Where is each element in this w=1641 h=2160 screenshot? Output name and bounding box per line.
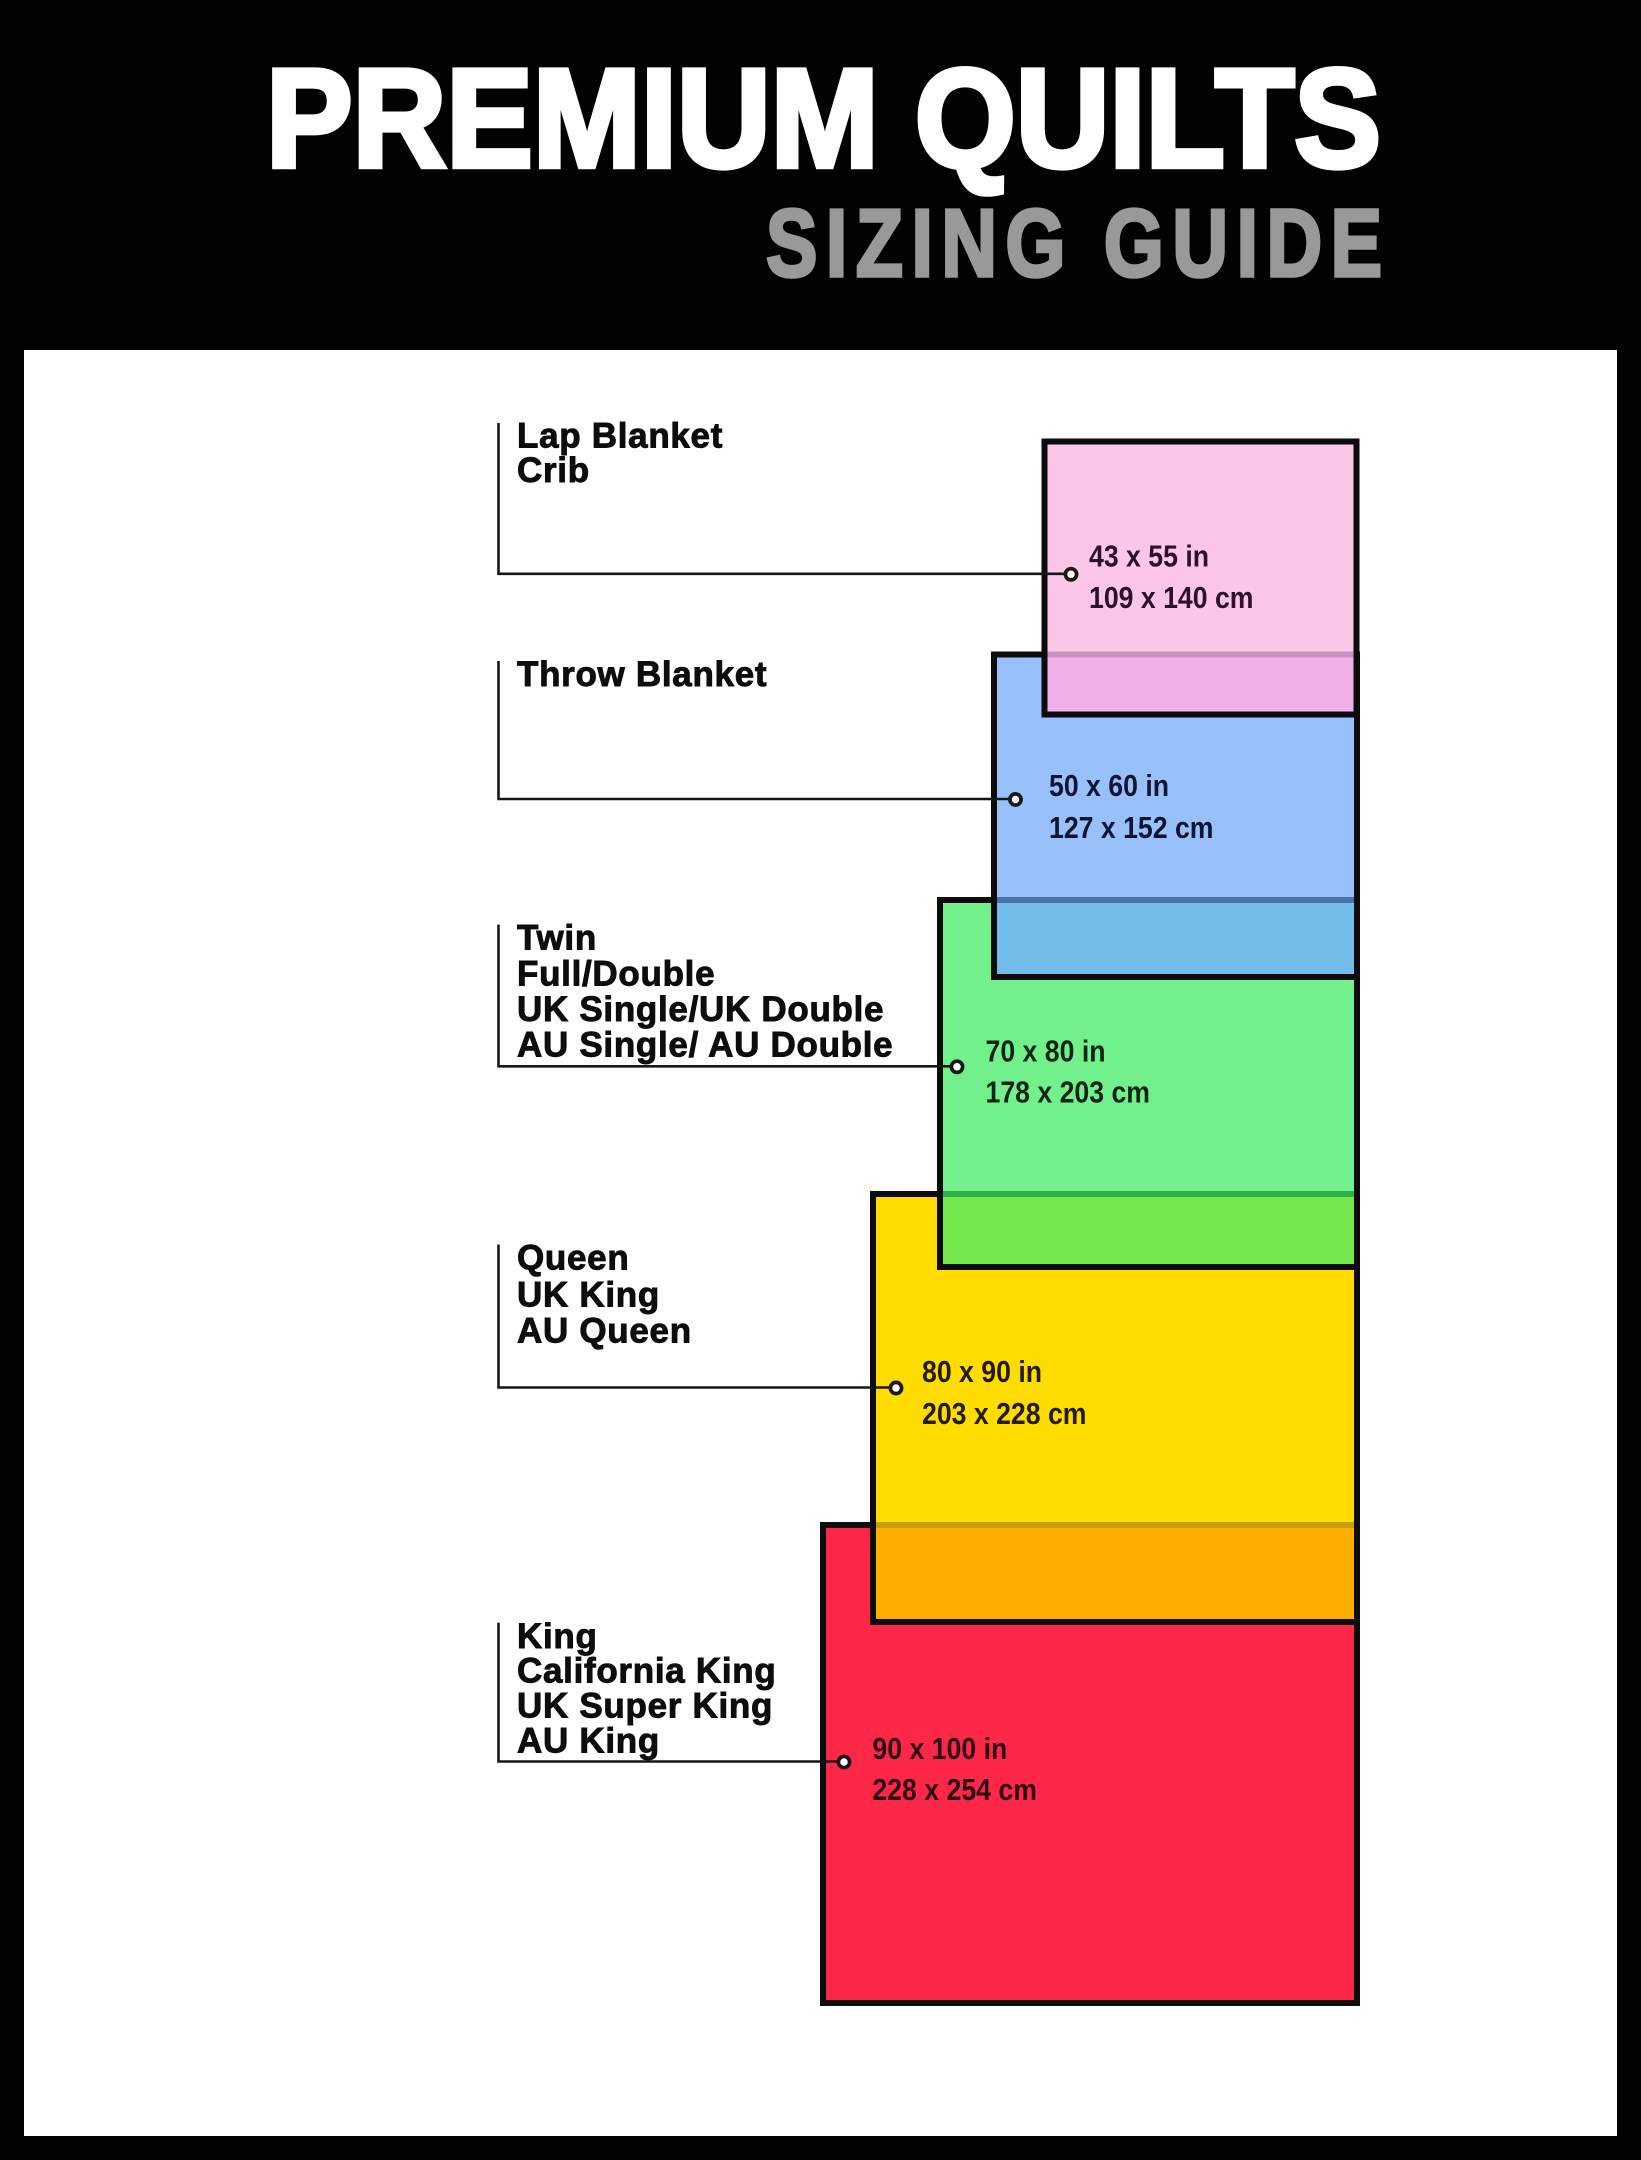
svg-text:UK Single/UK Double: UK Single/UK Double	[517, 990, 884, 1029]
svg-text:UK King: UK King	[517, 1276, 660, 1315]
svg-text:SIZING GUIDE: SIZING GUIDE	[766, 190, 1391, 297]
svg-text:43 x 55 in: 43 x 55 in	[1089, 539, 1209, 573]
svg-text:AU Single/ AU Double: AU Single/ AU Double	[517, 1026, 893, 1065]
svg-text:228 x 254 cm: 228 x 254 cm	[872, 1773, 1037, 1807]
svg-text:70 x 80 in: 70 x 80 in	[986, 1035, 1106, 1069]
svg-text:50 x 60 in: 50 x 60 in	[1049, 769, 1169, 803]
svg-text:UK Super King: UK Super King	[517, 1687, 773, 1726]
svg-text:Full/Double: Full/Double	[517, 954, 715, 993]
svg-text:80 x 90 in: 80 x 90 in	[922, 1355, 1042, 1389]
svg-text:PREMIUM QUILTS: PREMIUM QUILTS	[266, 40, 1381, 197]
svg-text:109 x 140 cm: 109 x 140 cm	[1089, 581, 1254, 615]
svg-text:Crib: Crib	[517, 451, 590, 490]
svg-text:Throw Blanket: Throw Blanket	[517, 655, 767, 694]
svg-text:King: King	[517, 1617, 598, 1656]
svg-text:Queen: Queen	[517, 1239, 629, 1278]
svg-text:203 x 228 cm: 203 x 228 cm	[922, 1397, 1087, 1431]
svg-text:127 x 152 cm: 127 x 152 cm	[1049, 811, 1214, 845]
svg-text:AU Queen: AU Queen	[517, 1311, 692, 1350]
svg-text:Lap Blanket: Lap Blanket	[517, 416, 723, 455]
svg-text:California King: California King	[517, 1652, 776, 1691]
svg-text:90 x 100 in: 90 x 100 in	[872, 1732, 1007, 1766]
svg-text:178 x 203 cm: 178 x 203 cm	[986, 1076, 1151, 1110]
svg-text:Twin: Twin	[517, 919, 597, 958]
svg-text:AU King: AU King	[517, 1722, 660, 1761]
